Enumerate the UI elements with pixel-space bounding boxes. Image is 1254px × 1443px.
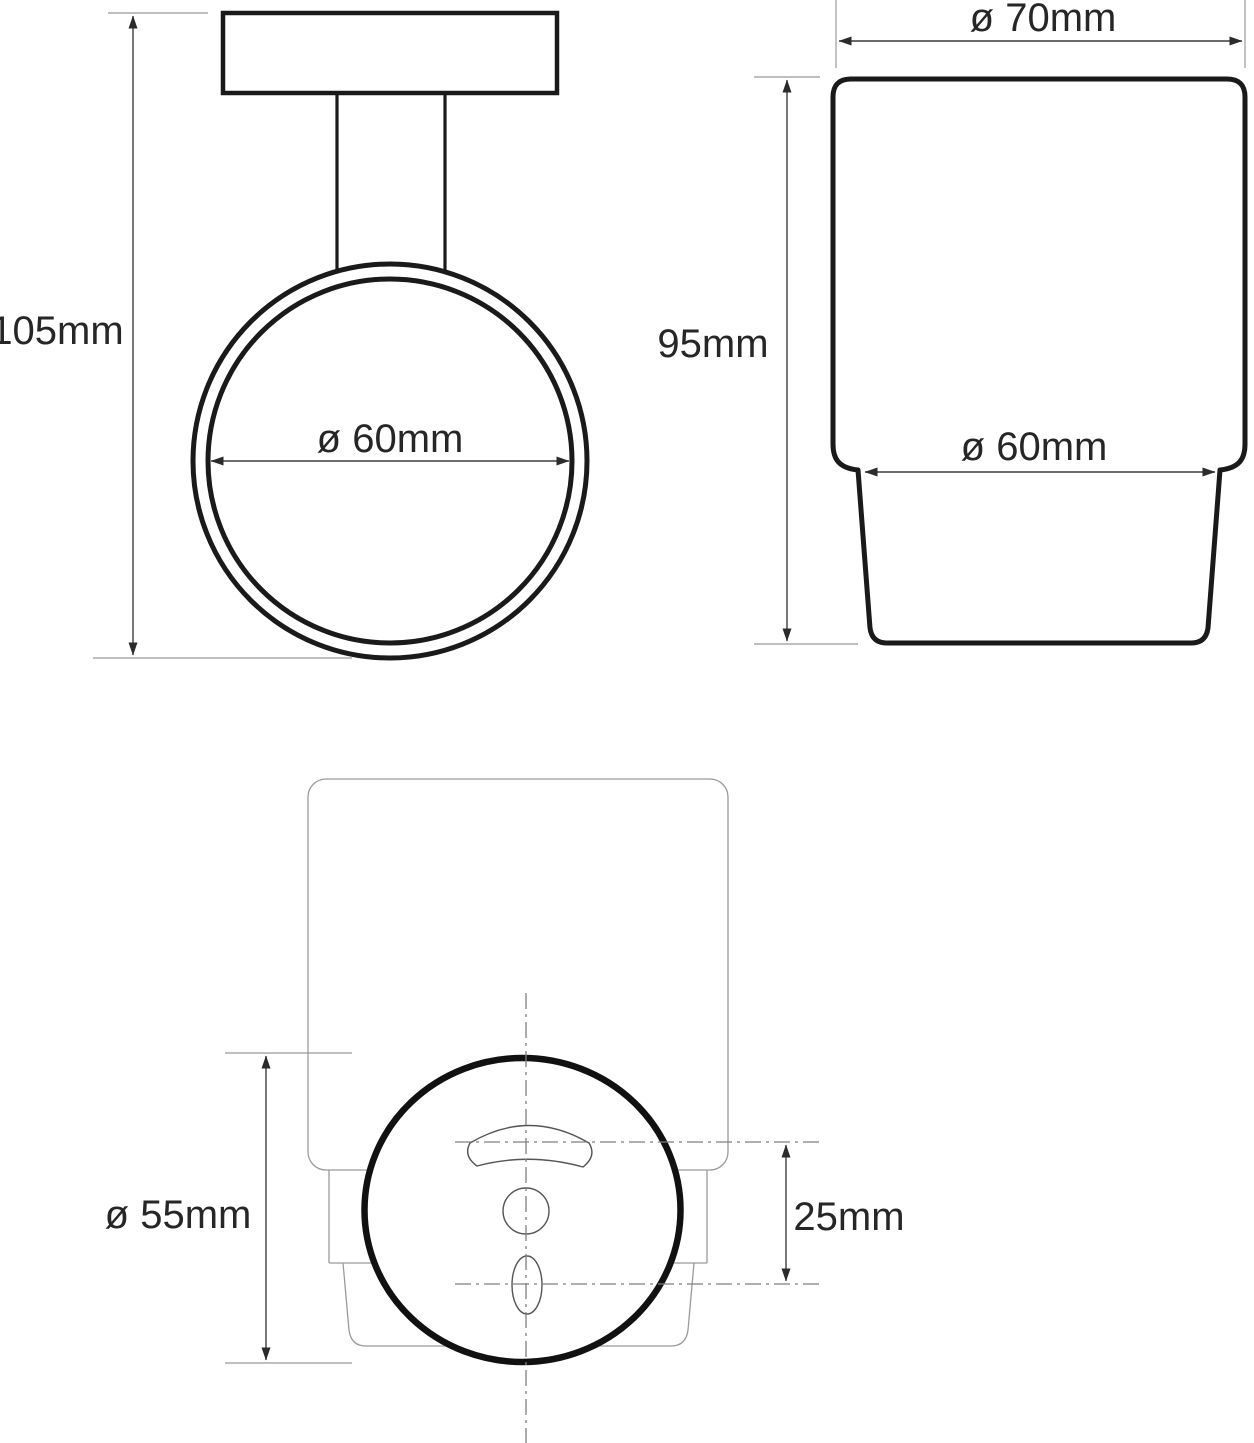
side-height-label: 95mm	[657, 322, 768, 366]
back-plate-diameter-label: ø 55mm	[105, 1193, 252, 1237]
side-top-diameter-label: ø 70mm	[970, 0, 1117, 40]
oval-screw-hole	[512, 1256, 542, 1314]
side-body-diameter-label: ø 60mm	[961, 425, 1108, 469]
tumbler-outline	[833, 79, 1245, 643]
tumbler-holder-drawing: 105mm ø 60mm ø 70mm 95mm ø 60mm	[0, 0, 1254, 1443]
back-view: ø 55mm 25mm	[105, 779, 905, 1443]
back-hole-spacing-label: 25mm	[793, 1195, 904, 1239]
side-view: ø 70mm 95mm ø 60mm	[657, 0, 1245, 644]
front-ring-diameter-label: ø 60mm	[317, 417, 464, 461]
front-height-label: 105mm	[0, 309, 124, 353]
wall-plate	[223, 13, 557, 93]
front-view: 105mm ø 60mm	[0, 13, 587, 658]
technical-drawing-page: 105mm ø 60mm ø 70mm 95mm ø 60mm	[0, 0, 1254, 1443]
